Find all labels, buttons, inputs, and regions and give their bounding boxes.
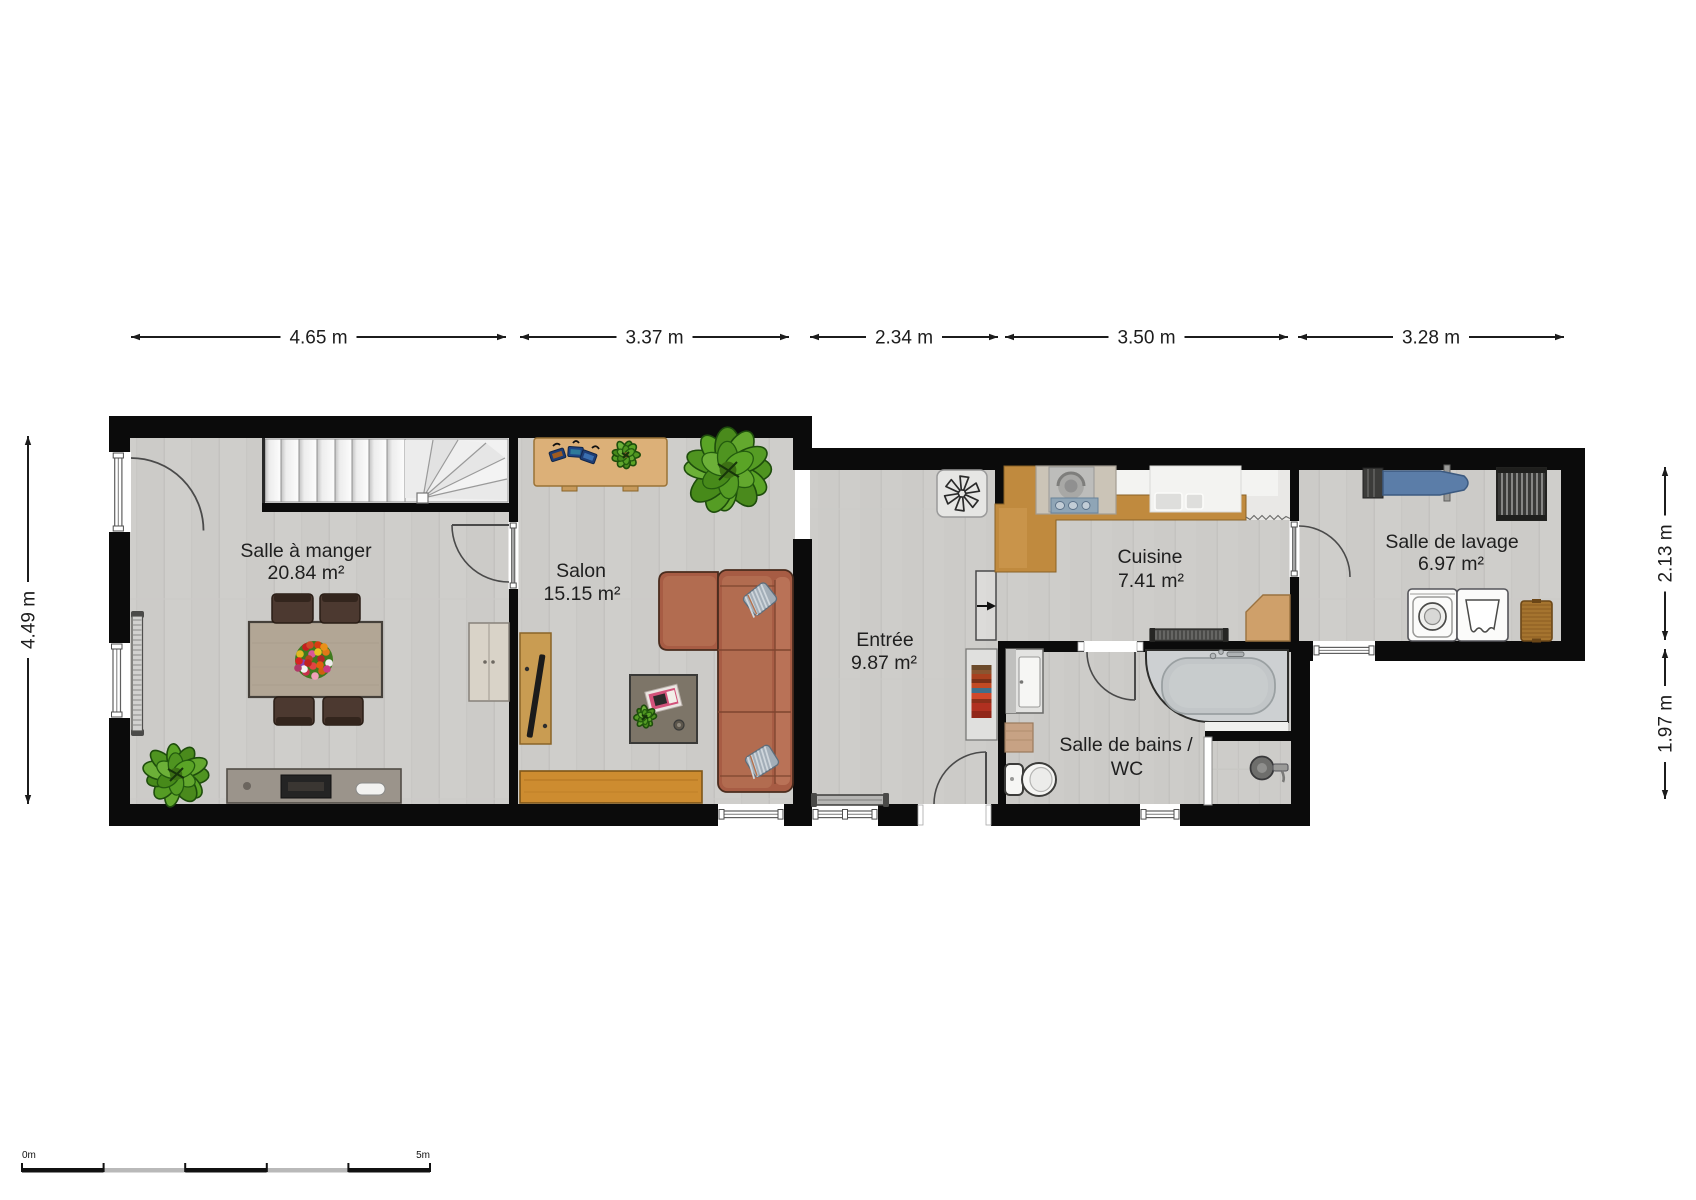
svg-text:0m: 0m xyxy=(22,1150,36,1161)
svg-text:Cuisine: Cuisine xyxy=(1117,546,1182,568)
svg-text:9.87 m²: 9.87 m² xyxy=(851,652,918,674)
svg-text:2.13 m: 2.13 m xyxy=(1656,524,1677,582)
svg-text:1.97 m: 1.97 m xyxy=(1656,695,1677,753)
svg-text:3.37 m: 3.37 m xyxy=(625,328,683,349)
svg-text:Salle de lavage: Salle de lavage xyxy=(1385,531,1518,553)
svg-text:15.15 m²: 15.15 m² xyxy=(544,583,621,605)
svg-text:3.28 m: 3.28 m xyxy=(1402,328,1460,349)
svg-text:3.50 m: 3.50 m xyxy=(1117,328,1175,349)
svg-text:5m: 5m xyxy=(416,1150,430,1161)
svg-text:2.34 m: 2.34 m xyxy=(875,328,933,349)
svg-text:Salle à manger: Salle à manger xyxy=(240,540,372,562)
svg-text:20.84 m²: 20.84 m² xyxy=(268,562,345,584)
svg-text:Entrée: Entrée xyxy=(856,629,913,651)
svg-text:Salle de bains /: Salle de bains / xyxy=(1059,734,1193,756)
svg-text:7.41 m²: 7.41 m² xyxy=(1118,570,1185,592)
svg-text:Salon: Salon xyxy=(556,560,606,582)
svg-text:4.49 m: 4.49 m xyxy=(19,591,40,649)
svg-text:WC: WC xyxy=(1111,758,1144,780)
svg-text:4.65 m: 4.65 m xyxy=(289,328,347,349)
svg-text:6.97 m²: 6.97 m² xyxy=(1418,553,1485,575)
